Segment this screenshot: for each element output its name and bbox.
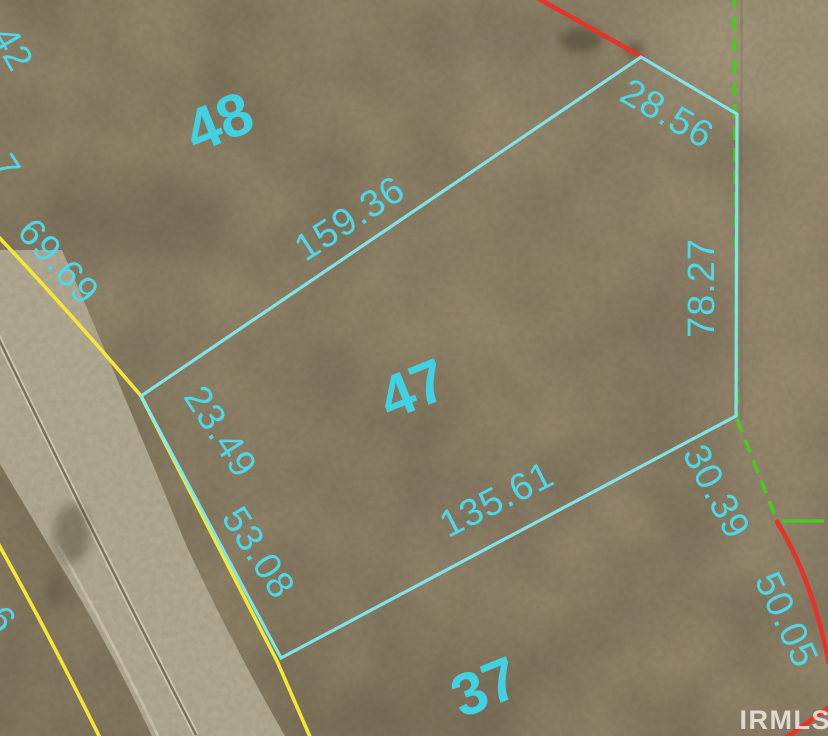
map-canvas: 159.36 28.56 78.27 135.61 23.49 53.08 30…: [0, 0, 828, 736]
dim-east-edge: 78.27: [681, 238, 723, 338]
plat-aerial-map: 159.36 28.56 78.27 135.61 23.49 53.08 30…: [0, 0, 828, 736]
watermark: IRMLS: [740, 705, 828, 735]
